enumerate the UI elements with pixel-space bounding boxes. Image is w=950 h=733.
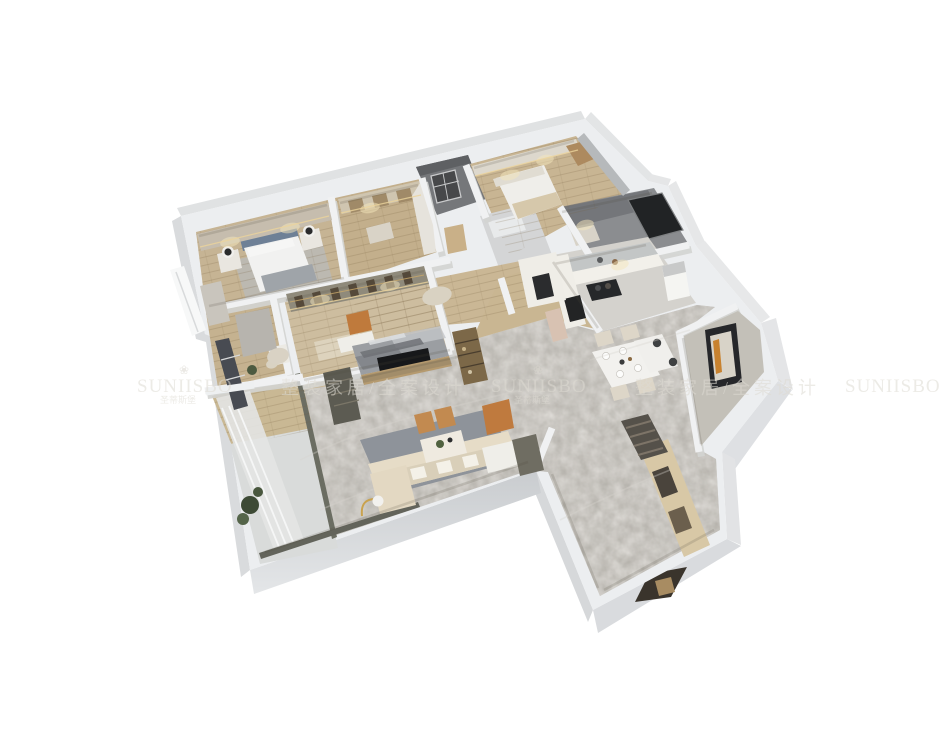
- svg-text:SUNIISBO: SUNIISBO: [845, 376, 941, 397]
- svg-text:❀: ❀: [533, 363, 543, 377]
- svg-text:SUNIISBO: SUNIISBO: [491, 376, 587, 397]
- svg-text:SUNIISBO: SUNIISBO: [137, 376, 233, 397]
- svg-text:圣蒂斯堡: 圣蒂斯堡: [160, 394, 196, 405]
- svg-text:整装家居/全案设计: 整装家居/全案设计: [635, 378, 820, 398]
- svg-text:圣蒂斯堡: 圣蒂斯堡: [514, 394, 550, 405]
- svg-text:❀: ❀: [179, 363, 189, 377]
- svg-text:整装家居/全案设计: 整装家居/全案设计: [281, 378, 466, 398]
